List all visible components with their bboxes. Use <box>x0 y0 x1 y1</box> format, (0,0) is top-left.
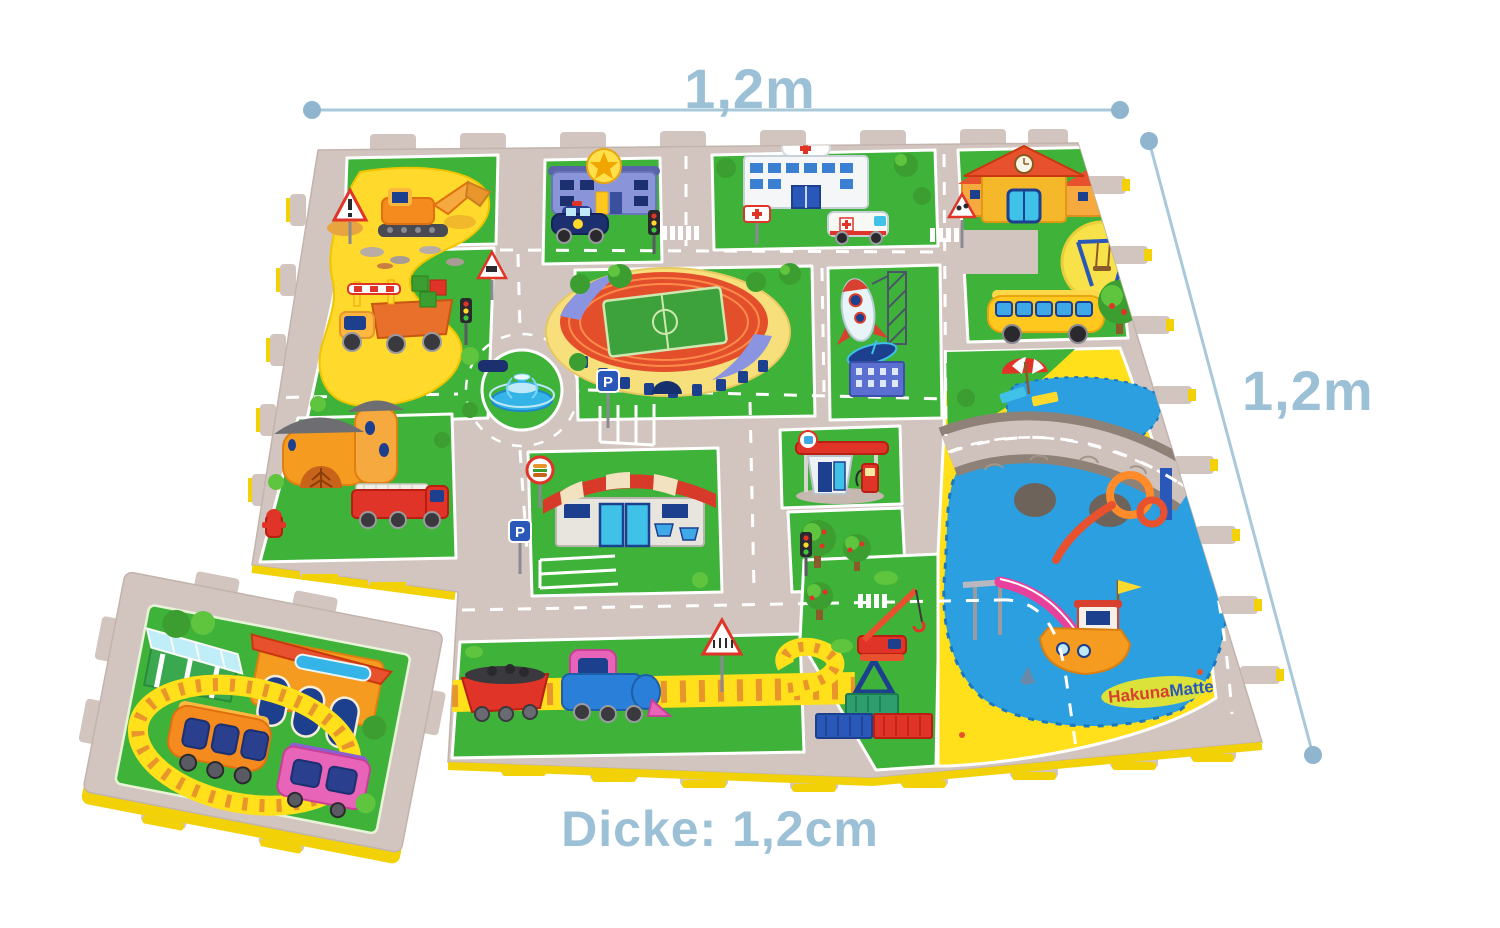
apartment-building <box>850 362 904 396</box>
parking-sign-letter: P <box>603 374 613 391</box>
parking-sign-letter: P <box>515 524 525 541</box>
height-dimension-label: 1,2m <box>1242 358 1374 423</box>
dimension-dot <box>1111 101 1129 119</box>
train-station-tile <box>65 555 460 875</box>
coal-wagon <box>462 664 548 721</box>
dimension-dot <box>1304 746 1322 764</box>
dimension-dot <box>1140 132 1158 150</box>
dimension-dot <box>303 101 321 119</box>
thickness-label: Dicke: 1,2cm <box>520 800 920 858</box>
fire-truck <box>352 484 448 528</box>
dark-car <box>478 360 508 372</box>
gas-station <box>796 431 888 504</box>
width-dimension-label: 1,2m <box>640 56 860 121</box>
scene-svg: HakunaMatte <box>0 0 1500 928</box>
school-driveway <box>952 230 1038 274</box>
lake-tile: HakunaMatte <box>938 348 1229 766</box>
product-image: HakunaMatte <box>0 0 1500 928</box>
